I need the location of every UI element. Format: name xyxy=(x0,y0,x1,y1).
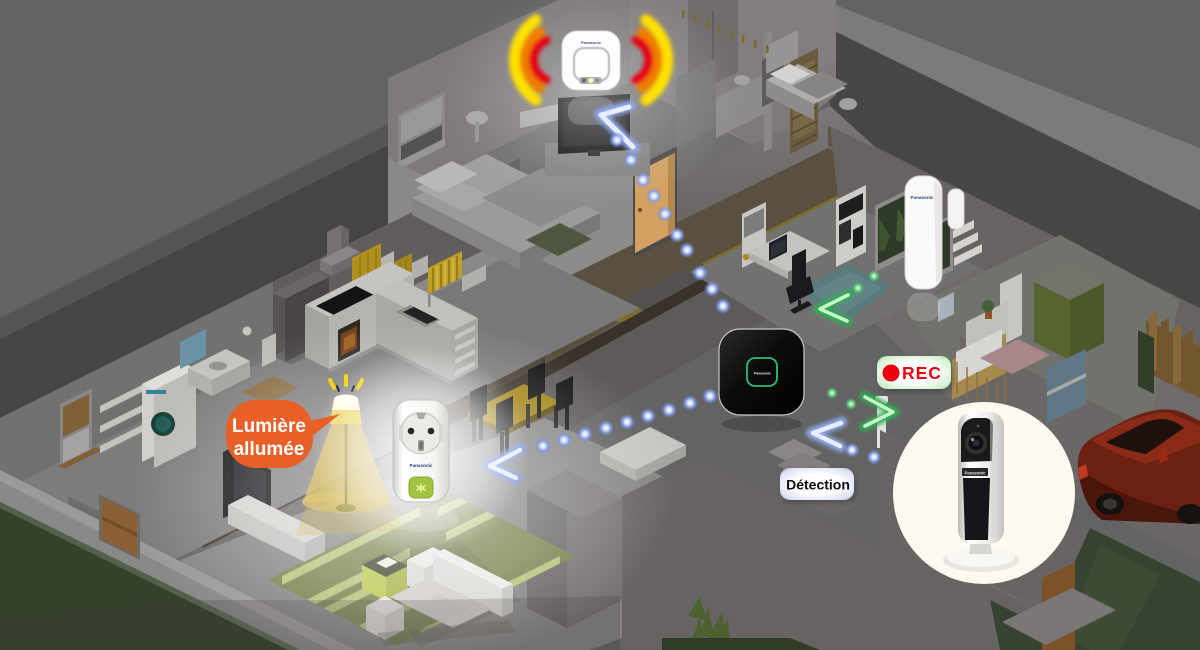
svg-text:Panasonic: Panasonic xyxy=(581,40,602,45)
svg-text:REC: REC xyxy=(902,363,942,383)
svg-text:Panasonic: Panasonic xyxy=(911,195,934,200)
svg-text:Détection: Détection xyxy=(786,477,850,493)
svg-text:Lumière: Lumière xyxy=(232,416,306,437)
svg-text:Panasonic: Panasonic xyxy=(410,463,433,468)
svg-text:Panasonic: Panasonic xyxy=(965,471,987,476)
svg-text:Panasonic: Panasonic xyxy=(754,372,771,376)
svg-text:allumée: allumée xyxy=(234,439,305,460)
